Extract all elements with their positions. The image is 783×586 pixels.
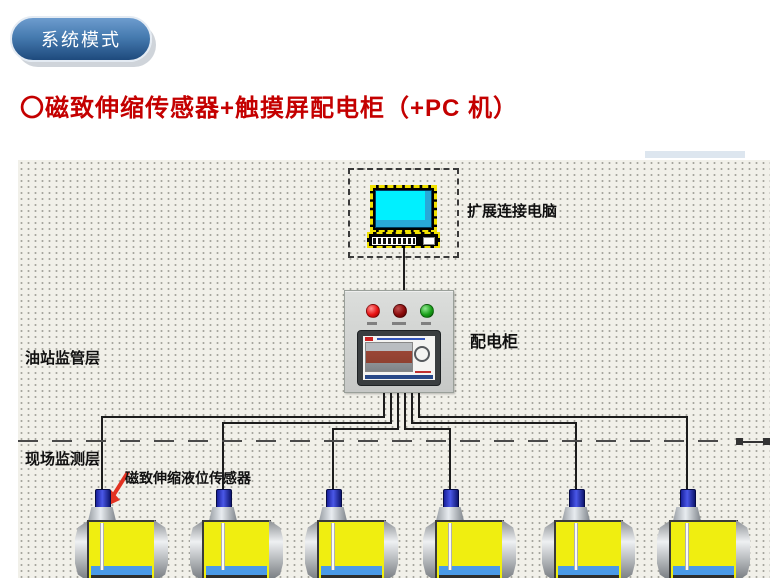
indicator-caption xyxy=(367,322,377,325)
water-layer xyxy=(673,566,734,575)
tank-body xyxy=(554,520,623,578)
fuel-tank xyxy=(75,487,168,578)
sensor-probe xyxy=(221,523,225,570)
tank-top-cap xyxy=(562,507,590,521)
tank-body xyxy=(87,520,156,578)
touchscreen-logo xyxy=(365,337,373,341)
tank-right-cap xyxy=(154,520,168,578)
keyboard-button xyxy=(423,237,435,245)
computer-screen xyxy=(375,190,432,228)
tank-top-cap xyxy=(209,507,237,521)
slide-title-badge: 系统模式 xyxy=(10,16,152,62)
fuel-tank xyxy=(657,487,750,578)
tank-sump xyxy=(91,575,152,578)
tank-top-cap xyxy=(319,507,347,521)
sensor-probe xyxy=(685,523,689,570)
computer-monitor-icon xyxy=(370,185,437,233)
sensor-probe xyxy=(574,523,578,570)
tank-sump xyxy=(321,575,382,578)
tank-right-cap xyxy=(269,520,283,578)
tank-sump xyxy=(558,575,619,578)
indicator-caption xyxy=(392,322,406,325)
touchscreen-red-text xyxy=(415,371,431,373)
fuel-tank xyxy=(423,487,516,578)
fuel-tank xyxy=(190,487,283,578)
tank-right-cap xyxy=(502,520,516,578)
line-terminator-end xyxy=(763,438,770,445)
touchscreen-emblem xyxy=(414,346,430,362)
tank-top-cap xyxy=(673,507,701,521)
indicator-light-green xyxy=(420,304,434,318)
sensor-probe xyxy=(100,523,104,570)
page-title: 〇磁致伸缩传感器+触摸屏配电柜（+PC 机） xyxy=(20,88,760,123)
tank-sump xyxy=(439,575,500,578)
touchscreen-header-text xyxy=(377,338,425,340)
tank-sump xyxy=(673,575,734,578)
indicator-light-dark-red xyxy=(393,304,407,318)
touchscreen-footer-bar xyxy=(365,375,433,379)
tank-right-cap xyxy=(384,520,398,578)
indicator-caption xyxy=(421,322,431,325)
tank-body xyxy=(669,520,738,578)
keyboard-keys xyxy=(372,237,416,245)
tank-top-cap xyxy=(88,507,116,521)
layer-dashed-line xyxy=(18,440,730,442)
touchscreen xyxy=(357,330,441,386)
slide-title-label: 系统模式 xyxy=(41,26,121,52)
supervision-layer-label: 油站监管层 xyxy=(25,347,100,368)
tank-top-cap xyxy=(436,507,464,521)
field-layer-label: 现场监测层 xyxy=(25,448,100,469)
water-layer xyxy=(206,566,267,575)
water-layer xyxy=(558,566,619,575)
system-diagram-panel: 扩展连接电脑 xyxy=(18,160,770,578)
sensor-probe xyxy=(331,523,335,570)
tank-right-cap xyxy=(736,520,750,578)
computer-keyboard-icon xyxy=(367,232,440,248)
cabinet-label: 配电柜 xyxy=(470,328,518,352)
sensor-probe xyxy=(448,523,452,570)
touchscreen-display xyxy=(363,336,435,380)
sensor-label: 磁致伸缩液位传感器 xyxy=(125,468,251,488)
tank-body xyxy=(317,520,386,578)
touchscreen-photo xyxy=(365,342,413,372)
fuel-tank xyxy=(542,487,635,578)
tank-body xyxy=(202,520,271,578)
distribution-cabinet xyxy=(344,290,454,393)
fuel-tank xyxy=(305,487,398,578)
pc-label: 扩展连接电脑 xyxy=(467,200,557,221)
tank-body xyxy=(435,520,504,578)
panel-top-sliver xyxy=(645,151,745,158)
indicator-light-red xyxy=(366,304,380,318)
tank-right-cap xyxy=(621,520,635,578)
tank-sump xyxy=(206,575,267,578)
